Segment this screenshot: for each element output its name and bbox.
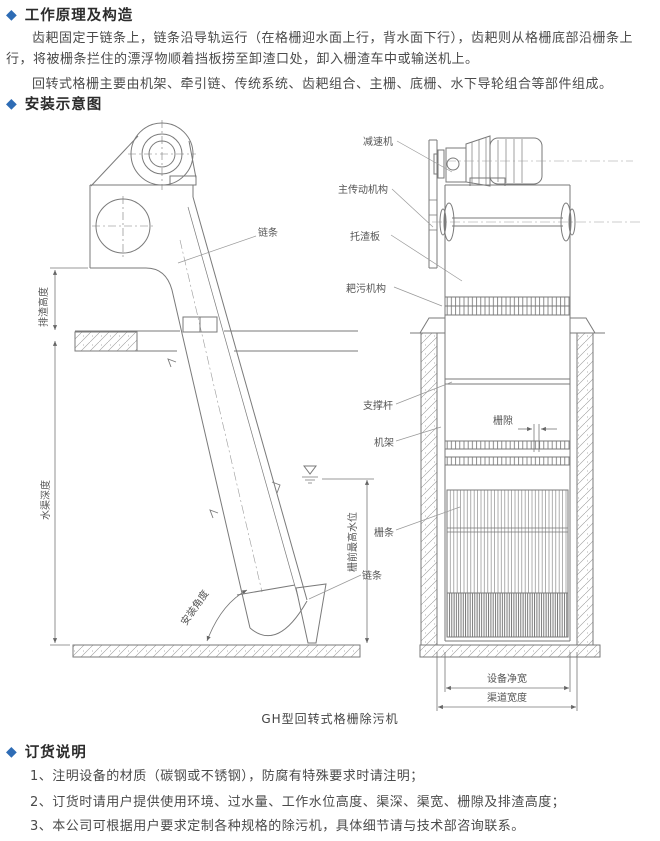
section-heading-ordering-text: 订货说明 bbox=[25, 741, 87, 762]
side-view-drawing bbox=[73, 120, 360, 657]
label-main-drive: 主传动机构 bbox=[338, 183, 388, 196]
label-rake-mechanism: 耙污机构 bbox=[346, 282, 386, 295]
installation-diagram: 减速机 主传动机构 托渣板 耙污机构 链条 支撑杆 机架 栅隙 栅条 链条 排渣… bbox=[0, 115, 660, 735]
ordering-item-2: 2、订货时请用户提供使用环境、过水量、工作水位高度、渠深、渠宽、栅隙及排渣高度； bbox=[30, 794, 650, 811]
label-frame: 机架 bbox=[374, 436, 394, 449]
motor-reducer-drawing bbox=[434, 136, 633, 186]
label-grid-bar: 栅条 bbox=[374, 526, 394, 539]
front-view-drawing bbox=[410, 136, 640, 657]
label-channel-width: 渠道宽度 bbox=[487, 691, 527, 704]
label-channel-depth: 水渠深度 bbox=[39, 480, 52, 520]
label-install-angle: 安装角度 bbox=[178, 587, 212, 627]
label-grid-gap: 栅隙 bbox=[493, 414, 513, 427]
upper-rake-comb bbox=[445, 297, 570, 315]
label-chain-lower: 链条 bbox=[362, 569, 382, 582]
principle-paragraph-1: 齿耙固定于链条上，链条沿导轨运行（在格栅迎水面上行，背水面下行），齿耙则从格栅底… bbox=[6, 28, 650, 70]
label-chain-upper: 链条 bbox=[258, 226, 278, 239]
section-heading-diagram: ◆ 安装示意图 bbox=[6, 93, 102, 114]
document-page: ◆ 工作原理及构造 齿耙固定于链条上，链条沿导轨运行（在格栅迎水面上行，背水面下… bbox=[0, 0, 660, 841]
label-max-water-level: 栅前最高水位 bbox=[346, 512, 359, 572]
section-heading-principle: ◆ 工作原理及构造 bbox=[6, 4, 133, 25]
label-equipment-net-width: 设备净宽 bbox=[487, 672, 527, 685]
principle-paragraph-2: 回转式格栅主要由机架、牵引链、传统系统、齿耙组合、主栅、底栅、水下导轮组合等部件… bbox=[6, 74, 650, 95]
diamond-bullet-icon: ◆ bbox=[6, 745, 18, 759]
lower-rake-comb bbox=[445, 441, 570, 465]
ordering-item-1: 1、注明设备的材质（碳钢或不锈钢），防腐有特殊要求时请注明； bbox=[30, 768, 650, 785]
label-support-rod: 支撑杆 bbox=[363, 399, 393, 412]
water-level-icon bbox=[302, 466, 318, 483]
ordering-item-3: 3、本公司可根据用户要求定制各种规格的除污机，具体细节请与技术部咨询联系。 bbox=[30, 818, 650, 835]
grid-bars-drawing bbox=[447, 490, 568, 637]
section-heading-diagram-text: 安装示意图 bbox=[25, 93, 103, 114]
label-reducer: 减速机 bbox=[363, 135, 393, 148]
section-heading-principle-text: 工作原理及构造 bbox=[25, 4, 134, 25]
drive-shaft-drawing bbox=[432, 203, 640, 241]
label-discharge-height: 排渣高度 bbox=[37, 287, 50, 327]
diamond-bullet-icon: ◆ bbox=[6, 8, 18, 22]
leader-lines bbox=[178, 141, 462, 599]
diagram-caption: GH型回转式格栅除污机 bbox=[261, 711, 398, 726]
section-heading-ordering: ◆ 订货说明 bbox=[6, 741, 87, 762]
label-slag-tray: 托渣板 bbox=[350, 230, 380, 243]
diamond-bullet-icon: ◆ bbox=[6, 97, 18, 111]
